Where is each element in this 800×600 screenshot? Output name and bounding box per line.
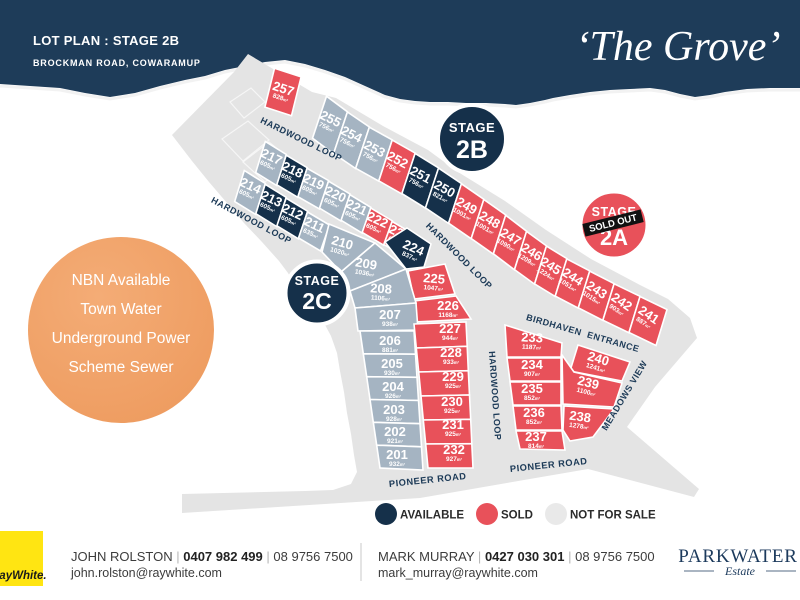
svg-text:881m²: 881m² xyxy=(382,347,399,354)
svg-text:933m²: 933m² xyxy=(443,359,460,366)
svg-text:938m²: 938m² xyxy=(382,321,399,328)
svg-text:STAGE: STAGE xyxy=(295,274,340,288)
svg-text:‘The Grove’: ‘The Grove’ xyxy=(576,24,781,70)
svg-text:925m²: 925m² xyxy=(445,431,462,438)
svg-text:RayWhite.: RayWhite. xyxy=(0,570,47,582)
svg-text:228: 228 xyxy=(440,345,462,360)
svg-text:234: 234 xyxy=(521,357,543,372)
svg-text:2C: 2C xyxy=(302,288,331,314)
svg-text:mark_murray@raywhite.com: mark_murray@raywhite.com xyxy=(378,566,538,580)
svg-text:204: 204 xyxy=(382,379,404,394)
svg-text:john.rolston@raywhite.com: john.rolston@raywhite.com xyxy=(70,566,222,580)
svg-text:AVAILABLE: AVAILABLE xyxy=(400,510,464,522)
svg-text:207: 207 xyxy=(379,307,401,322)
svg-text:814m²: 814m² xyxy=(528,443,545,450)
svg-text:NBN Available: NBN Available xyxy=(72,272,171,289)
svg-text:925m²: 925m² xyxy=(444,408,461,415)
svg-text:205: 205 xyxy=(381,356,403,371)
svg-text:STAGE: STAGE xyxy=(449,120,495,135)
svg-text:Underground Power: Underground Power xyxy=(52,330,191,347)
svg-text:921m²: 921m² xyxy=(387,438,404,445)
svg-text:232: 232 xyxy=(443,442,465,457)
svg-text:237: 237 xyxy=(525,429,547,444)
svg-text:230: 230 xyxy=(441,394,463,409)
svg-text:235: 235 xyxy=(521,381,543,396)
svg-text:229: 229 xyxy=(442,369,464,384)
svg-text:236: 236 xyxy=(523,405,545,420)
svg-text:925m²: 925m² xyxy=(445,383,462,390)
svg-text:907m²: 907m² xyxy=(524,371,541,378)
svg-text:1168m²: 1168m² xyxy=(438,312,458,319)
svg-text:1187m²: 1187m² xyxy=(522,344,542,352)
svg-text:927m²: 927m² xyxy=(446,456,463,463)
svg-text:201: 201 xyxy=(386,447,408,462)
svg-text:LOT PLAN : STAGE 2B: LOT PLAN : STAGE 2B xyxy=(33,33,179,48)
svg-text:202: 202 xyxy=(384,424,406,439)
svg-text:JOHN ROLSTON | 0407 982 499 |: JOHN ROLSTON | 0407 982 499 | 08 9756 75… xyxy=(71,549,353,564)
svg-text:206: 206 xyxy=(379,333,401,348)
svg-text:BROCKMAN ROAD, COWARAMUP: BROCKMAN ROAD, COWARAMUP xyxy=(33,58,201,68)
svg-text:Scheme Sewer: Scheme Sewer xyxy=(68,359,173,376)
svg-text:944m²: 944m² xyxy=(442,335,459,342)
svg-text:231: 231 xyxy=(442,417,464,432)
svg-text:Town Water: Town Water xyxy=(80,301,161,318)
svg-text:203: 203 xyxy=(383,402,405,417)
svg-text:852m²: 852m² xyxy=(526,419,543,426)
svg-text:227: 227 xyxy=(439,321,461,336)
svg-text:1106m²: 1106m² xyxy=(371,295,391,303)
svg-text:MARK MURRAY | 0427 030 301 | 0: MARK MURRAY | 0427 030 301 | 08 9756 750… xyxy=(378,549,655,564)
svg-text:2B: 2B xyxy=(456,136,488,164)
svg-text:226: 226 xyxy=(437,298,459,313)
svg-text:932m²: 932m² xyxy=(389,461,406,468)
svg-text:NOT FOR SALE: NOT FOR SALE xyxy=(570,510,656,522)
svg-text:SOLD: SOLD xyxy=(501,510,533,522)
svg-text:Estate: Estate xyxy=(724,564,756,578)
svg-text:852m²: 852m² xyxy=(524,395,541,402)
